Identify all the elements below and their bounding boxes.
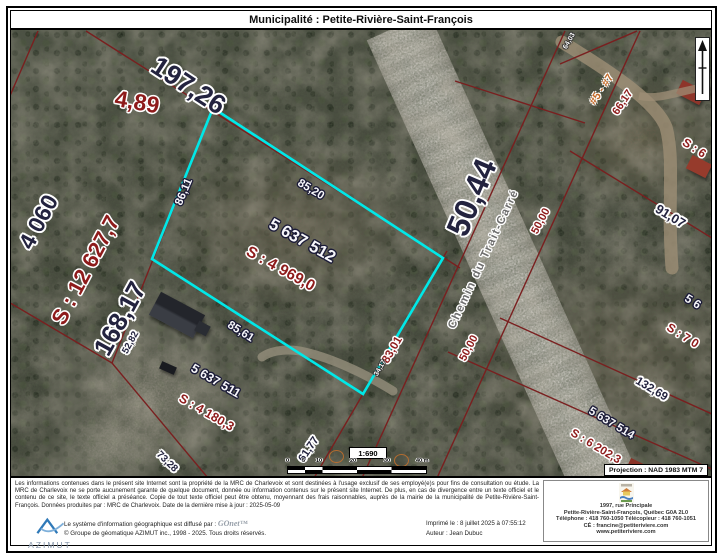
map-canvas[interactable]: 197,26 4,89 4 060 S : 12 627,7 168,17 52… <box>10 29 712 477</box>
footer: Les informations contenues dans le prése… <box>10 477 712 546</box>
contact-website: www.petiteriviere.com <box>596 529 655 536</box>
gonet-logo: GOnet™ <box>218 519 248 528</box>
dirt-driveway-spur <box>639 88 699 97</box>
diffusion-prefix: Le système d'information géographique es… <box>64 521 216 528</box>
scale-tick: 0 <box>286 458 289 464</box>
page-title: Municipalité : Petite-Rivière-Saint-Fran… <box>249 14 473 26</box>
contact-address-line2: Petite-Rivière-Saint-François, Québec G0… <box>564 510 688 517</box>
scale-tick: 20 <box>350 458 356 464</box>
north-arrow-icon <box>696 38 709 100</box>
contact-address-line1: 1997, rue Principale <box>600 503 653 510</box>
scale-bar <box>287 466 427 474</box>
scale-tick: 30 <box>384 458 390 464</box>
title-bar: Municipalité : Petite-Rivière-Saint-Fran… <box>10 10 712 29</box>
scale-tick: 10 <box>316 458 322 464</box>
copyright-text: © Groupe de géomatique AZIMUT inc., 1998… <box>64 530 266 537</box>
legal-text: Les informations contenues dans le prése… <box>15 481 539 510</box>
scale-tick: 40 m <box>416 458 429 464</box>
municipality-logo <box>619 483 634 503</box>
diffusion-line: Le système d'information géographique es… <box>64 519 248 528</box>
dirt-driveway-path <box>562 42 672 268</box>
municipality-contact-box: 1997, rue Principale Petite-Rivière-Sain… <box>543 480 709 542</box>
azimut-logo-icon <box>32 517 68 535</box>
print-page: Municipalité : Petite-Rivière-Saint-Fran… <box>0 0 725 560</box>
scale-tick-labels: 0 5 10 20 30 40 m <box>287 458 433 465</box>
contact-phone-line: Téléphone : 418 760-1050 Télécopieur : 4… <box>556 516 696 523</box>
contact-email-line: CÉ : francine@petiteriviere.com <box>584 523 669 530</box>
projection-label: Projection : NAD 1983 MTM 7 <box>604 464 708 476</box>
azimut-logo-text: AZIMUT <box>26 540 74 550</box>
north-arrow <box>695 37 710 101</box>
scale-tick: 5 <box>302 458 305 464</box>
printed-date: Imprimé le : 8 juillet 2025 à 07:55:12 <box>426 520 526 527</box>
author-label: Auteur : Jean Dubuc <box>426 530 482 537</box>
